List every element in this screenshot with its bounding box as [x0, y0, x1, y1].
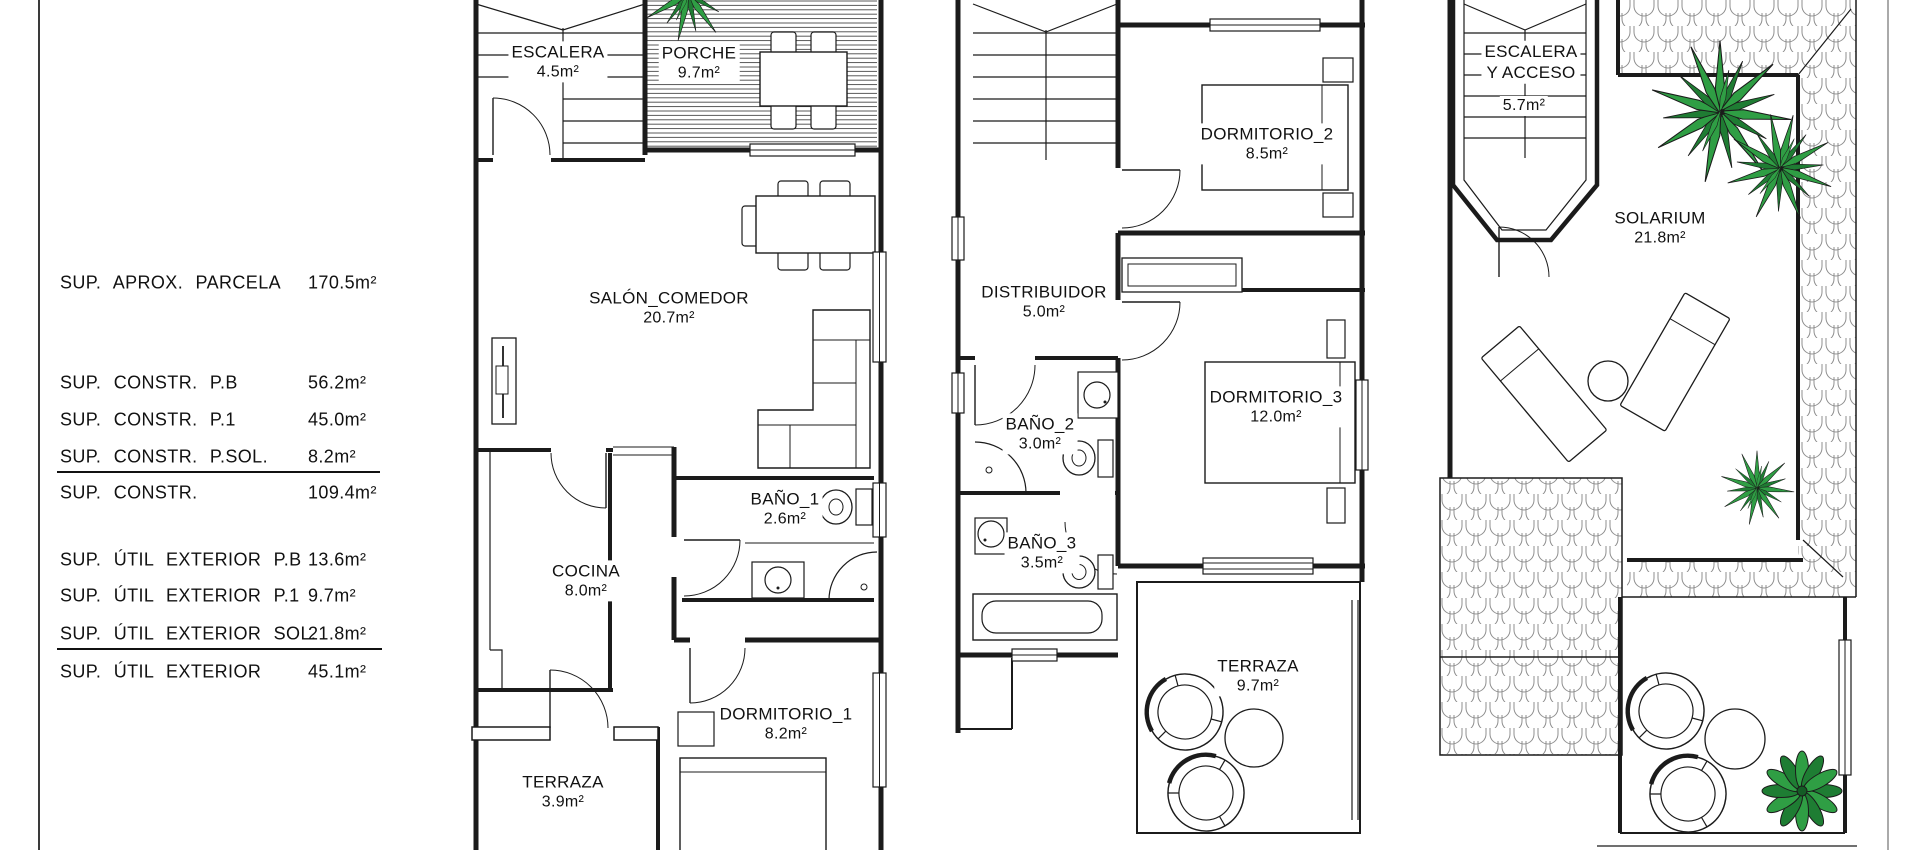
- summary-row: SUP. APROX. PARCELA 170.5m²: [60, 273, 405, 294]
- summary-label: SUP. CONSTR. P.B: [60, 373, 238, 393]
- tv-unit: [492, 338, 516, 424]
- room-label-dormitorio-1: DORMITORIO_1 8.2m²: [717, 703, 856, 744]
- room-label-cocina: COCINA 8.0m²: [549, 560, 623, 601]
- summary-label: SUP. CONSTR. P.1: [60, 410, 236, 430]
- summary-row: SUP. CONSTR. P.1 45.0m²: [60, 410, 405, 431]
- summary-label: SUP. CONSTR. P.SOL.: [60, 447, 268, 467]
- room-label-escalera-y-acceso: ESCALERA Y ACCESO: [1481, 41, 1580, 84]
- room-label-bano-1: BAÑO_1 2.6m²: [748, 488, 823, 529]
- summary-row: SUP. ÚTIL EXTERIOR P.B 13.6m²: [60, 550, 405, 571]
- room-label-distribuidor: DISTRIBUIDOR 5.0m²: [978, 281, 1109, 322]
- room-label-dormitorio-2: DORMITORIO_2 8.5m²: [1198, 123, 1337, 164]
- summary-row: SUP. ÚTIL EXTERIOR 45.1m²: [60, 662, 405, 683]
- summary-row: SUP. ÚTIL EXTERIOR SOL. 21.8m²: [60, 624, 405, 645]
- summary-label: SUP. CONSTR.: [60, 483, 198, 503]
- summary-value: 9.7m²: [308, 586, 356, 607]
- summary-row: SUP. CONSTR. P.B 56.2m²: [60, 373, 405, 394]
- room-label-terraza-p1: TERRAZA 9.7m²: [1214, 655, 1301, 696]
- round-table-icon: [1225, 709, 1283, 767]
- summary-label: SUP. ÚTIL EXTERIOR SOL.: [60, 624, 316, 644]
- terrace-parapet: [472, 727, 658, 740]
- room-label-bano-2: BAÑO_2 3.0m²: [1003, 413, 1078, 454]
- room-label-solarium: SOLARIUM 21.8m²: [1611, 207, 1708, 248]
- summary-value: 45.1m²: [308, 662, 366, 683]
- sun-lounger: [1620, 293, 1730, 432]
- summary-value: 8.2m²: [308, 447, 356, 468]
- summary-row: SUP. CONSTR. 109.4m²: [60, 483, 405, 504]
- floor-plan-drawing: [440, 0, 1920, 850]
- room-label-bano-3: BAÑO_3 3.5m²: [1005, 532, 1080, 573]
- staircase: [973, 4, 1117, 160]
- room-label-dormitorio-3: DORMITORIO_3 12.0m²: [1207, 386, 1346, 427]
- summary-value: 56.2m²: [308, 373, 366, 394]
- sofa: [758, 310, 870, 468]
- room-area-escalera-y-acceso: 5.7m²: [1500, 96, 1548, 116]
- summary-label: SUP. ÚTIL EXTERIOR P.B: [60, 550, 302, 570]
- summary-value: 13.6m²: [308, 550, 366, 571]
- interior-lines: [490, 447, 874, 690]
- doors: [493, 98, 745, 728]
- summary-divider: [57, 648, 382, 650]
- sheet-left-border: [38, 0, 40, 850]
- summary-value: 45.0m²: [308, 410, 366, 431]
- round-table-icon: [1588, 361, 1628, 401]
- summary-row: SUP. ÚTIL EXTERIOR P.1 9.7m²: [60, 586, 405, 607]
- round-table-icon: [1705, 709, 1765, 769]
- summary-row: SUP. CONSTR. P.SOL. 8.2m²: [60, 447, 405, 468]
- sun-lounger: [1481, 326, 1607, 462]
- summary-divider: [57, 471, 380, 473]
- summary-value: 109.4m²: [308, 483, 377, 504]
- summary-value: 21.8m²: [308, 624, 366, 645]
- floor-plan-sheet: SUP. APROX. PARCELA 170.5m² SUP. CONSTR.…: [0, 0, 1920, 850]
- solarium-plan: [1440, 0, 1888, 850]
- summary-label: SUP. ÚTIL EXTERIOR P.1: [60, 586, 300, 606]
- room-label-salon-comedor: SALÓN_COMEDOR 20.7m²: [586, 287, 752, 328]
- room-label-porche: PORCHE 9.7m²: [659, 42, 740, 83]
- summary-value: 170.5m²: [308, 273, 377, 294]
- summary-label: SUP. APROX. PARCELA: [60, 273, 281, 293]
- summary-label: SUP. ÚTIL EXTERIOR: [60, 662, 261, 682]
- room-label-terraza-pb: TERRAZA 3.9m²: [519, 771, 606, 812]
- dining-table-and-chairs: [742, 181, 875, 270]
- room-label-escalera: ESCALERA 4.5m²: [508, 41, 607, 82]
- wardrobe: [1122, 258, 1242, 292]
- windows: [1839, 640, 1851, 775]
